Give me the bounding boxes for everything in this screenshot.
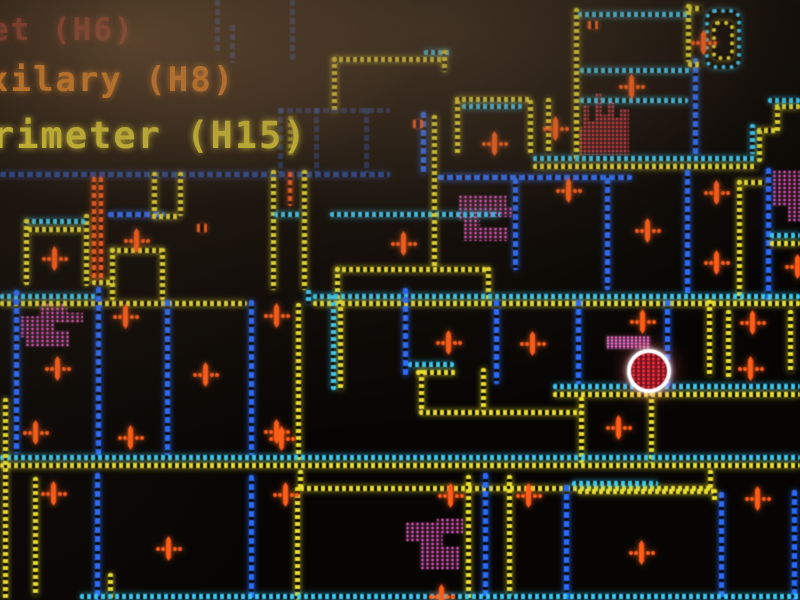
fence-line: [770, 241, 800, 246]
fence-line: [178, 172, 183, 216]
sensor-cross-marker: [703, 249, 730, 276]
fence-line: [3, 398, 8, 600]
sensor-cross-marker: [40, 480, 67, 507]
fence-line: [775, 106, 780, 132]
fence-line: [649, 392, 654, 463]
fence-line: [313, 301, 800, 306]
sensor-cross-marker: [515, 482, 542, 509]
fence-line: [572, 481, 658, 486]
sensor-cross-marker: [192, 361, 219, 388]
fence-line: [296, 303, 301, 460]
fence-line: [419, 410, 582, 415]
sensor-cross-marker: [155, 535, 182, 562]
sensor-cross-marker: [737, 355, 764, 382]
sensor-cross-marker: [428, 583, 455, 600]
fence-line: [24, 219, 29, 285]
sensor-cross-marker: [690, 29, 717, 56]
pipe-line-orange: [99, 177, 103, 281]
active-alarm-circle[interactable]: [627, 349, 671, 393]
fence-line: [576, 300, 581, 384]
fence-line: [96, 287, 101, 455]
fence-line: [160, 248, 165, 300]
pipe-line-orange: [92, 177, 96, 281]
legend-item: rimeter (H15): [0, 114, 308, 157]
fence-line: [719, 492, 724, 600]
sensor-cross-marker: [437, 482, 464, 509]
fence-line: [110, 248, 115, 300]
fence-line: [737, 180, 765, 185]
dash-glyph: [197, 224, 208, 232]
fence-line: [290, 0, 295, 60]
fence-line: [553, 392, 800, 397]
fence-line: [712, 489, 717, 501]
fence-line: [331, 295, 336, 390]
fence-line: [533, 156, 757, 161]
fence-line: [688, 62, 702, 67]
sensor-cross-marker: [263, 302, 290, 329]
legend-item: xilary (H8): [0, 60, 235, 100]
fence-line: [271, 170, 276, 290]
fence-line: [533, 164, 757, 169]
fence-line: [466, 475, 471, 600]
fence-line: [25, 219, 85, 224]
sensor-cross-marker: [629, 308, 656, 335]
fence-line: [278, 108, 390, 113]
pipe-line-orange: [288, 172, 292, 206]
fence-line: [432, 115, 437, 268]
fence-line: [95, 473, 100, 600]
sensor-cross-marker: [605, 414, 632, 441]
sensor-cross-marker: [519, 330, 546, 357]
fence-line: [338, 300, 343, 390]
fence-line: [152, 172, 157, 216]
fence-line: [768, 98, 800, 103]
sensor-cross-marker: [542, 115, 569, 142]
fence-line: [28, 227, 82, 232]
fence-line: [332, 57, 337, 113]
sensor-cross-marker: [123, 227, 150, 254]
dash-glyph: [413, 120, 424, 128]
fence-line: [688, 6, 702, 11]
fence-line: [481, 368, 486, 412]
hatch-pattern: [772, 170, 800, 222]
sensor-cross-marker: [22, 419, 49, 446]
fence-line: [230, 25, 235, 63]
fence-line: [364, 108, 369, 173]
fence-line: [313, 294, 800, 299]
fence-line: [788, 310, 793, 372]
fence-line: [408, 362, 454, 367]
fence-line: [335, 267, 488, 272]
perimeter-line: [0, 463, 800, 468]
sensor-cross-marker: [703, 179, 730, 206]
fence-line: [553, 384, 800, 389]
fence-line: [455, 97, 530, 102]
fence-line: [708, 470, 713, 488]
sensor-cross-marker: [739, 309, 766, 336]
fence-line: [33, 477, 38, 595]
fence-line: [403, 288, 408, 376]
sensor-cross-marker: [628, 539, 655, 566]
fence-line: [84, 214, 89, 286]
sensor-cross-marker: [44, 355, 71, 382]
fence-line: [330, 212, 500, 217]
fence-line: [165, 300, 170, 455]
sensor-cross-marker: [784, 253, 800, 280]
fence-line: [775, 104, 800, 109]
fence-line: [737, 180, 742, 300]
fence-line: [494, 300, 499, 384]
fence-line: [274, 212, 302, 217]
fence-line: [685, 170, 690, 295]
fence-line: [249, 300, 254, 455]
fence-line: [332, 57, 444, 62]
fence-line: [14, 290, 19, 453]
screen-photo-of-alarm-map: et (H6)xilary (H8)rimeter (H15): [0, 0, 800, 600]
sensor-cross-marker: [744, 485, 771, 512]
sensor-cross-marker: [390, 230, 417, 257]
fence-line: [578, 489, 714, 494]
fence-line: [314, 108, 319, 173]
fence-line: [726, 310, 731, 378]
sensor-cross-marker: [112, 303, 139, 330]
fence-line: [306, 290, 311, 304]
fence-line: [302, 170, 307, 290]
perimeter-line: [0, 455, 800, 460]
hatch-pattern: [606, 336, 651, 349]
hatch-pattern: [458, 195, 513, 241]
fence-line: [693, 58, 698, 158]
sensor-cross-marker: [272, 481, 299, 508]
hatch-pattern: [405, 518, 463, 570]
fence-line: [578, 12, 691, 17]
fence-line: [513, 178, 518, 270]
sensor-cross-marker: [268, 425, 295, 452]
fence-line: [750, 124, 755, 154]
fence-line: [564, 485, 569, 600]
hatch-pattern: [20, 303, 83, 347]
fence-line: [462, 104, 522, 109]
fence-line: [483, 473, 488, 600]
sensor-cross-marker: [634, 217, 661, 244]
fence-line: [507, 475, 512, 596]
fence-line: [215, 0, 220, 55]
fence-line: [455, 100, 460, 154]
fence-line: [442, 50, 447, 72]
fence-line: [574, 8, 579, 160]
legend-item: et (H6): [0, 12, 135, 48]
fence-line: [0, 172, 390, 177]
sensor-cross-marker: [481, 130, 508, 157]
fence-line: [757, 130, 762, 162]
fence-line: [792, 490, 797, 600]
sensor-cross-marker: [41, 245, 68, 272]
sensor-cross-marker: [117, 424, 144, 451]
fence-line: [579, 397, 584, 463]
fence-line: [757, 128, 777, 133]
sensor-cross-marker: [555, 177, 582, 204]
fence-line: [528, 100, 533, 154]
fence-line: [249, 475, 254, 600]
fence-line: [419, 370, 424, 412]
fence-line: [770, 233, 800, 238]
fence-line: [605, 178, 610, 290]
fence-line: [438, 175, 632, 180]
dash-glyph: [588, 21, 599, 29]
fence-line: [152, 214, 180, 219]
sensor-cross-marker: [618, 73, 645, 100]
sensor-cross-marker: [435, 329, 462, 356]
fence-line: [707, 300, 712, 376]
